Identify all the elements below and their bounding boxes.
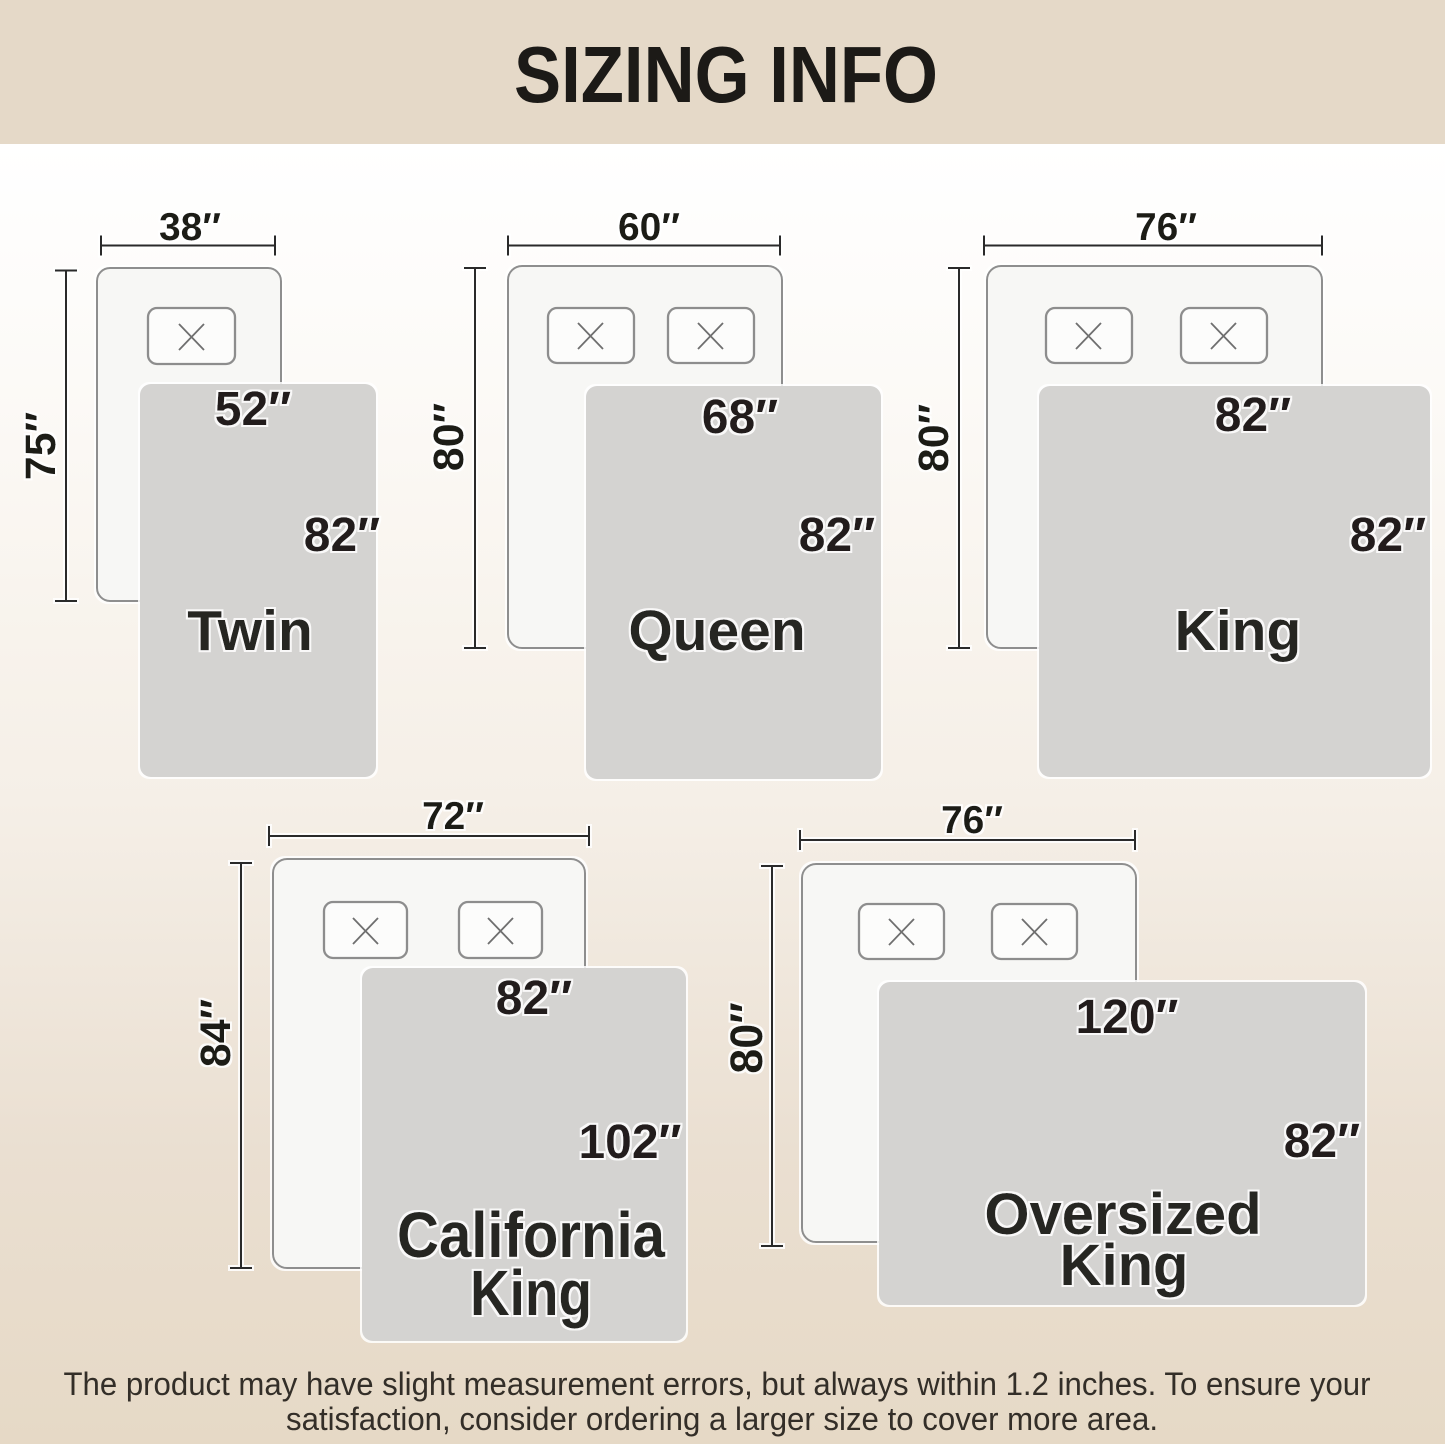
svg-text:Queen: Queen [628, 599, 805, 663]
svg-text:King: King [1175, 599, 1302, 663]
svg-text:82″: 82″ [1284, 1115, 1360, 1168]
svg-text:satisfaction, consider orderin: satisfaction, consider ordering a larger… [286, 1401, 1158, 1437]
svg-text:68″: 68″ [702, 391, 778, 444]
svg-text:King: King [470, 1257, 592, 1329]
svg-text:80″: 80″ [910, 404, 958, 472]
svg-text:The product may have slight me: The product may have slight measurement … [64, 1366, 1371, 1402]
svg-text:82″: 82″ [304, 509, 380, 562]
svg-text:King: King [1060, 1233, 1189, 1298]
svg-text:60″: 60″ [618, 206, 680, 249]
svg-text:120″: 120″ [1075, 991, 1178, 1044]
svg-text:82″: 82″ [799, 509, 875, 562]
svg-text:102″: 102″ [578, 1116, 681, 1169]
svg-text:Twin: Twin [187, 599, 313, 663]
svg-text:52″: 52″ [215, 383, 291, 436]
svg-text:SIZING INFO: SIZING INFO [514, 30, 938, 119]
svg-text:76″: 76″ [941, 799, 1003, 842]
svg-text:80″: 80″ [425, 403, 473, 471]
svg-text:72″: 72″ [422, 795, 484, 838]
svg-text:76″: 76″ [1135, 206, 1197, 249]
svg-text:82″: 82″ [1350, 509, 1426, 562]
svg-text:38″: 38″ [159, 206, 221, 249]
svg-text:82″: 82″ [1215, 389, 1291, 442]
svg-text:80″: 80″ [721, 1002, 772, 1074]
svg-text:82″: 82″ [496, 972, 572, 1025]
svg-text:75″: 75″ [17, 412, 65, 480]
svg-text:84″: 84″ [192, 999, 240, 1067]
